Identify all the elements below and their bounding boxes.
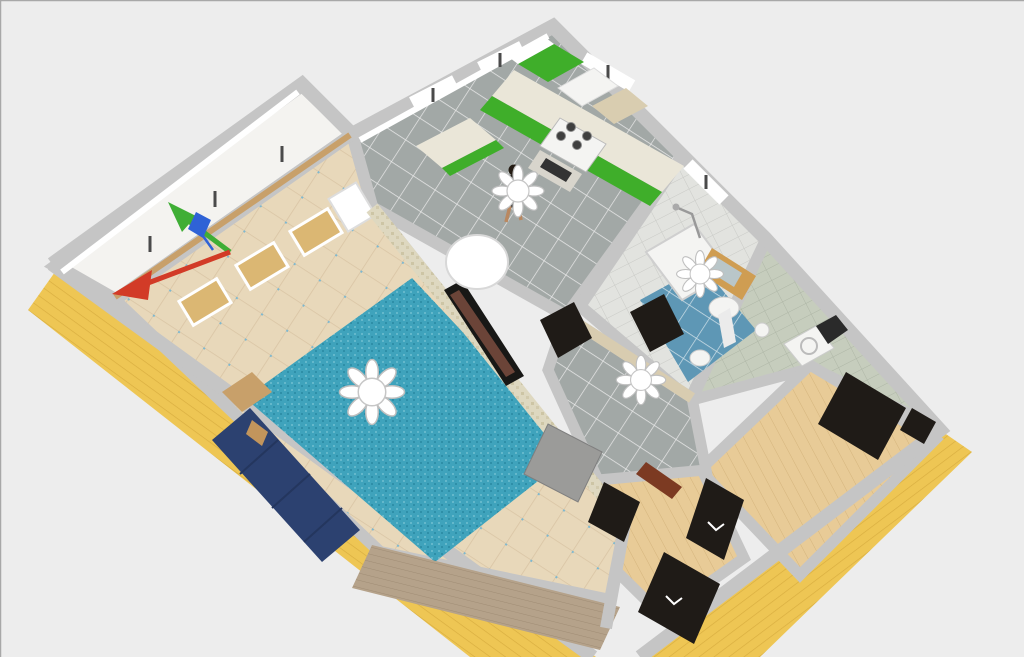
living-ceiling-lamp [340, 360, 405, 425]
floorplan-3d-scene[interactable] [0, 0, 1024, 657]
toilet [690, 350, 710, 366]
round-table [446, 235, 508, 289]
hallway-ceiling-lamp [616, 355, 665, 404]
kitchen-ceiling-lamp [492, 165, 544, 217]
waste-bin [755, 323, 769, 337]
3d-view-canvas[interactable] [0, 0, 1024, 657]
shower-head [673, 204, 680, 211]
bathroom-ceiling-lamp [677, 251, 724, 298]
